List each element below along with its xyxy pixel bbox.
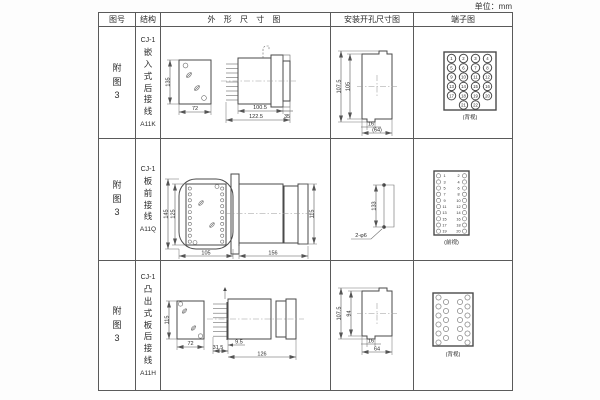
- svg-text:12: 12: [485, 75, 490, 80]
- dim-label: 16: [368, 339, 374, 345]
- dim-label: 107.5: [337, 80, 343, 94]
- dim-label: 107.5: [337, 307, 343, 321]
- front-view: [179, 60, 211, 104]
- svg-text:18: 18: [461, 93, 466, 98]
- svg-text:11: 11: [443, 205, 447, 209]
- fig-no-row3: 附图3: [111, 305, 124, 347]
- outline-cell-row3: 115 72 31.5 9.5 126: [161, 261, 331, 391]
- dim-label: 122.5: [249, 114, 263, 120]
- side-view: [225, 174, 313, 254]
- dim-label: 94: [347, 310, 353, 316]
- structure-desc-row2: 板前接线: [143, 176, 154, 224]
- dim-label: 125: [171, 209, 177, 218]
- svg-text:20: 20: [485, 93, 490, 98]
- svg-text:14: 14: [461, 84, 466, 89]
- svg-text:1: 1: [450, 56, 453, 61]
- side-view: [207, 287, 304, 340]
- svg-text:3: 3: [474, 56, 477, 61]
- header-structure: 结构: [136, 13, 161, 27]
- svg-text:17: 17: [442, 223, 446, 227]
- dim-label: 105: [201, 251, 210, 257]
- header-fig-no: 图号: [99, 13, 136, 27]
- fig-no-cell-row2: 附图3: [99, 139, 136, 261]
- model-row3: CJ-1: [141, 274, 156, 281]
- screw-mark: [191, 325, 197, 331]
- model-row1: CJ-1: [141, 37, 156, 44]
- fig-no-row1: 附图3: [111, 62, 124, 104]
- hole-spec-label: 2-φ6: [355, 233, 367, 239]
- svg-text:15: 15: [442, 217, 446, 221]
- svg-text:6: 6: [462, 65, 465, 70]
- dim-label: 72: [192, 106, 198, 112]
- model-code-row1: A11K: [140, 121, 155, 128]
- terminal-dots: [188, 187, 224, 243]
- svg-text:6: 6: [457, 187, 459, 191]
- header-outline: 外 形 尺 寸 图: [161, 13, 331, 27]
- outline-cell-row2: 145 125 105 156 115: [161, 139, 331, 261]
- svg-text:15: 15: [473, 84, 478, 89]
- dim-label: 100.5: [253, 105, 267, 111]
- screw-mark: [182, 308, 188, 314]
- dim-label: 72: [187, 341, 193, 347]
- model-code-row2: A11Q: [140, 226, 156, 233]
- svg-text:21: 21: [461, 103, 466, 108]
- dim-label: 133: [372, 201, 378, 210]
- terminal-plate: [433, 293, 473, 346]
- terminal-cell-row3: (背视): [414, 261, 513, 391]
- structure-cell-row3: CJ-1 凸出式板后接线 A11H: [136, 261, 161, 391]
- svg-text:2: 2: [457, 174, 459, 178]
- svg-text:1: 1: [443, 174, 445, 178]
- dim-label: 156: [268, 251, 277, 257]
- svg-text:4: 4: [486, 56, 489, 61]
- dim-label: 126: [257, 352, 266, 358]
- terminal-diagram-row1: (背视) 12345678910111213141516171819202122: [414, 27, 512, 138]
- svg-text:11: 11: [473, 75, 478, 80]
- fig-no-cell-row3: 附图3: [99, 261, 136, 391]
- svg-text:4: 4: [457, 180, 459, 184]
- terminal-diagram-row2: (前视) 1234567891011121314151617181920: [414, 139, 512, 260]
- dim-label: 115: [165, 316, 171, 325]
- terminal-cell-row2: (前视) 1234567891011121314151617181920: [414, 139, 513, 261]
- dim-label: 35: [284, 114, 290, 120]
- outline-drawing-row2: 145 125 105 156 115: [161, 139, 330, 260]
- screw-mark: [198, 200, 204, 206]
- svg-text:16: 16: [485, 84, 490, 89]
- dim-label: 105: [346, 82, 352, 91]
- svg-text:5: 5: [443, 187, 445, 191]
- header-mounting: 安装开孔尺寸图: [331, 13, 414, 27]
- mounting-drawing-row2: 133 2-φ6: [331, 139, 413, 260]
- dim-label: 9.5: [235, 340, 243, 346]
- screw-mark: [209, 222, 215, 228]
- svg-text:17: 17: [449, 93, 454, 98]
- svg-text:14: 14: [456, 211, 460, 215]
- outline-cell-row1: 135 72 100.5 35 122.: [161, 27, 331, 139]
- clip-hook: [263, 46, 269, 58]
- outline-drawing-row1: 135 72 100.5 35 122.: [161, 27, 330, 138]
- terminal-plate: [434, 171, 469, 235]
- svg-text:8: 8: [457, 193, 459, 197]
- view-caption: (前视): [444, 238, 459, 246]
- structure-cell-row2: CJ-1 板前接线 A11Q: [136, 139, 161, 261]
- fig-no-cell-row1: 附图3: [99, 27, 136, 139]
- svg-text:20: 20: [456, 230, 460, 234]
- terminal-cell-row1: (背视) 12345678910111213141516171819202122: [414, 27, 513, 139]
- mounting-drawing-row1: 107.5 105 16 (64): [331, 27, 413, 138]
- svg-text:19: 19: [442, 230, 446, 234]
- svg-text:3: 3: [443, 180, 445, 184]
- structure-desc-row3: 凸出式板后接线: [143, 284, 154, 367]
- model-code-row3: A11H: [140, 370, 156, 377]
- svg-text:7: 7: [474, 65, 477, 70]
- fig-no-row2: 附图3: [111, 179, 124, 221]
- svg-text:19: 19: [473, 93, 478, 98]
- mounting-cell-row1: 107.5 105 16 (64): [331, 27, 414, 139]
- mounting-drawing-row3: 107.5 94 16 64: [331, 261, 413, 390]
- front-view: [177, 301, 204, 339]
- screw-mark: [186, 72, 193, 79]
- svg-text:9: 9: [450, 75, 453, 80]
- dimension-table: 图号 结构 外 形 尺 寸 图 安装开孔尺寸图 端子图 附图3 CJ-1 嵌入式…: [98, 12, 513, 391]
- svg-text:7: 7: [443, 193, 445, 197]
- dim-label: 145: [164, 209, 170, 218]
- svg-text:16: 16: [456, 217, 460, 221]
- svg-text:10: 10: [461, 75, 466, 80]
- unit-label: 单位：mm: [98, 1, 512, 12]
- dim-label: (64): [372, 128, 382, 134]
- svg-text:9: 9: [443, 199, 445, 203]
- dim-label: 135: [166, 77, 172, 86]
- dim-label: 31.5: [213, 345, 224, 351]
- svg-text:22: 22: [473, 103, 478, 108]
- screw-mark: [194, 85, 201, 92]
- structure-cell-row1: CJ-1 嵌入式后接线 A11K: [136, 27, 161, 139]
- orientation-arrowhead: [223, 287, 227, 291]
- header-terminal: 端子图: [414, 13, 513, 27]
- view-caption: (背视): [463, 113, 478, 121]
- dim-label: 115: [310, 210, 316, 219]
- mounting-cell-row2: 133 2-φ6: [331, 139, 414, 261]
- svg-text:18: 18: [456, 223, 460, 227]
- svg-text:2: 2: [462, 56, 465, 61]
- side-view: [221, 46, 297, 107]
- dim-label: 64: [374, 347, 380, 353]
- front-view: [179, 179, 233, 249]
- terminal-diagram-row3: (背视): [414, 261, 512, 390]
- svg-text:5: 5: [450, 65, 453, 70]
- svg-text:8: 8: [486, 65, 489, 70]
- svg-text:13: 13: [442, 211, 446, 215]
- model-row2: CJ-1: [141, 166, 156, 173]
- svg-text:12: 12: [456, 205, 460, 209]
- outline-drawing-row3: 115 72 31.5 9.5 126: [161, 261, 330, 390]
- mounting-cell-row3: 107.5 94 16 64: [331, 261, 414, 391]
- view-caption: (背视): [446, 350, 461, 358]
- structure-desc-row1: 嵌入式后接线: [143, 47, 154, 118]
- svg-text:10: 10: [456, 199, 460, 203]
- svg-text:13: 13: [449, 84, 454, 89]
